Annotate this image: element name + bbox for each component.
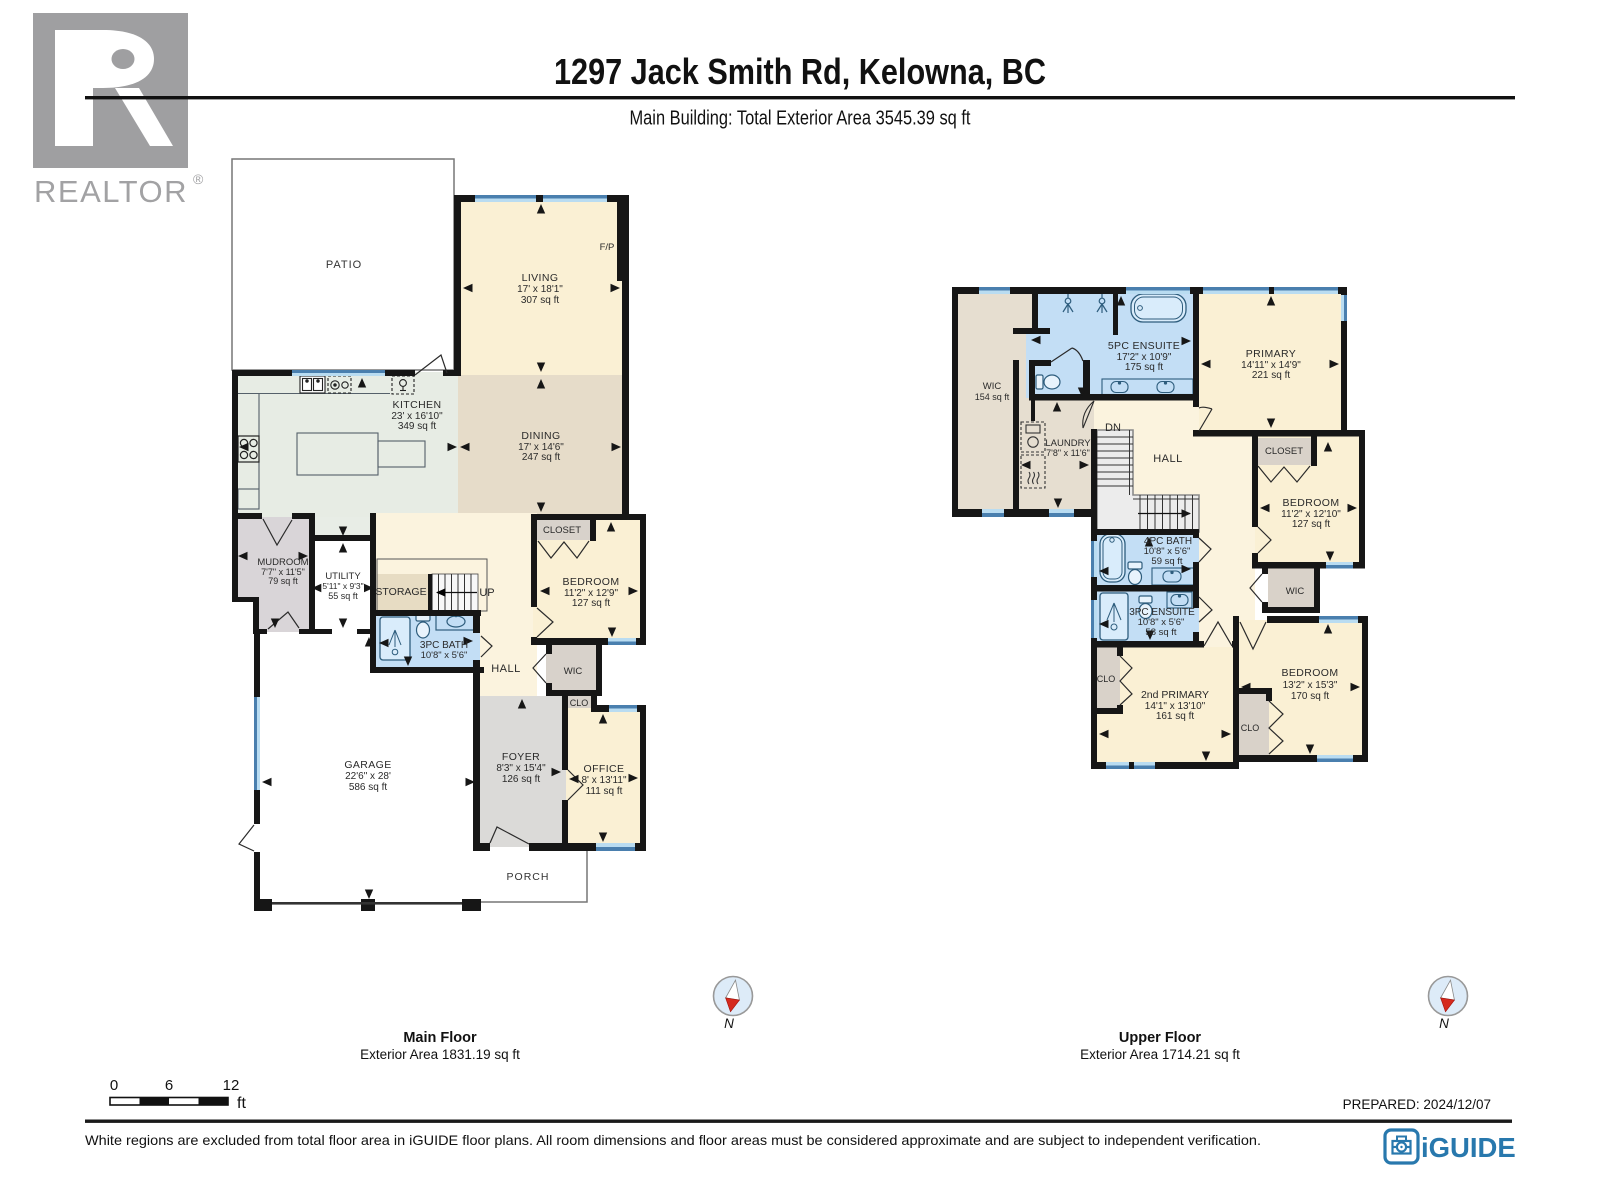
svg-text:PORCH: PORCH [507,871,550,883]
svg-text:CLOSET: CLOSET [1265,446,1303,457]
svg-text:N: N [1439,1016,1449,1031]
svg-text:CLO: CLO [1097,674,1116,684]
svg-text:PRIMARY: PRIMARY [1246,348,1296,360]
svg-text:111 sq ft: 111 sq ft [586,786,623,797]
svg-text:PREPARED: 2024/12/07: PREPARED: 2024/12/07 [1343,1097,1491,1112]
svg-text:BEDROOM: BEDROOM [1282,497,1339,509]
svg-text:Exterior Area 1831.19 sq ft: Exterior Area 1831.19 sq ft [360,1047,520,1062]
svg-text:ft: ft [237,1095,246,1112]
svg-text:LIVING: LIVING [522,272,559,284]
svg-text:307 sq ft: 307 sq ft [521,295,560,306]
svg-text:55 sq ft: 55 sq ft [328,591,358,601]
svg-text:CLOSET: CLOSET [543,525,581,536]
svg-text:CLO: CLO [1241,723,1260,733]
svg-text:Main Building: Total Exterior: Main Building: Total Exterior Area 3545.… [630,107,971,130]
svg-text:PATIO: PATIO [326,259,362,271]
svg-text:13'2" x 15'3": 13'2" x 15'3" [1283,680,1338,691]
svg-text:White regions are excluded fro: White regions are excluded from total fl… [85,1132,1261,1148]
svg-text:BEDROOM: BEDROOM [1281,667,1338,679]
svg-text:F/P: F/P [600,242,615,253]
svg-text:8'3" x 15'4": 8'3" x 15'4" [496,763,546,774]
svg-text:CLO: CLO [570,698,589,708]
svg-text:REALTOR: REALTOR [34,174,188,209]
svg-text:N: N [724,1016,734,1031]
svg-text:22'6" x 28': 22'6" x 28' [345,771,391,782]
svg-text:6: 6 [165,1077,173,1094]
svg-text:iGUIDE: iGUIDE [1421,1132,1516,1163]
svg-text:8' x 13'11": 8' x 13'11" [582,775,627,786]
svg-text:12: 12 [223,1077,240,1094]
svg-text:175 sq ft: 175 sq ft [1125,362,1164,373]
svg-text:58 sq ft: 58 sq ft [1145,627,1177,638]
svg-text:170 sq ft: 170 sq ft [1291,691,1330,702]
svg-text:127 sq ft: 127 sq ft [572,598,611,609]
svg-text:349 sq ft: 349 sq ft [398,421,437,432]
svg-text:247 sq ft: 247 sq ft [522,452,561,463]
svg-text:0: 0 [110,1077,118,1094]
svg-text:FOYER: FOYER [502,751,540,763]
svg-text:154 sq ft: 154 sq ft [975,392,1010,402]
svg-text:STORAGE: STORAGE [375,586,426,598]
svg-text:1297 Jack Smith Rd, Kelowna, B: 1297 Jack Smith Rd, Kelowna, BC [554,51,1046,92]
svg-text:Main Floor: Main Floor [403,1030,477,1046]
svg-text:5'11" x 9'3": 5'11" x 9'3" [322,581,363,591]
svg-text:WIC: WIC [564,666,583,677]
svg-text:126 sq ft: 126 sq ft [502,774,541,785]
svg-text:2nd PRIMARY: 2nd PRIMARY [1141,689,1209,701]
svg-text:HALL: HALL [1153,453,1183,465]
svg-text:586 sq ft: 586 sq ft [349,782,388,793]
svg-text:Upper Floor: Upper Floor [1119,1030,1202,1046]
svg-text:DN: DN [1105,422,1121,434]
svg-text:7'8" x 11'6": 7'8" x 11'6" [1046,448,1090,458]
svg-text:UP: UP [479,587,494,599]
svg-text:HALL: HALL [491,663,521,675]
svg-text:221 sq ft: 221 sq ft [1252,370,1291,381]
svg-text:Exterior Area 1714.21 sq ft: Exterior Area 1714.21 sq ft [1080,1047,1240,1062]
svg-text:127 sq ft: 127 sq ft [1292,519,1331,530]
svg-text:79 sq ft: 79 sq ft [268,576,298,586]
svg-text:161 sq ft: 161 sq ft [1156,711,1195,722]
svg-text:OFFICE: OFFICE [584,763,625,775]
svg-text:59 sq ft: 59 sq ft [1151,556,1183,567]
svg-text:®: ® [193,171,204,187]
svg-text:WIC: WIC [983,381,1002,392]
svg-text:17' x 18'1": 17' x 18'1" [517,284,563,295]
svg-text:10'8" x 5'6": 10'8" x 5'6" [421,650,468,661]
svg-text:KITCHEN: KITCHEN [393,399,442,411]
svg-text:GARAGE: GARAGE [344,759,391,771]
svg-text:DINING: DINING [521,430,560,442]
svg-text:5PC ENSUITE: 5PC ENSUITE [1108,340,1180,352]
svg-text:BEDROOM: BEDROOM [562,576,619,588]
svg-text:WIC: WIC [1286,586,1305,597]
